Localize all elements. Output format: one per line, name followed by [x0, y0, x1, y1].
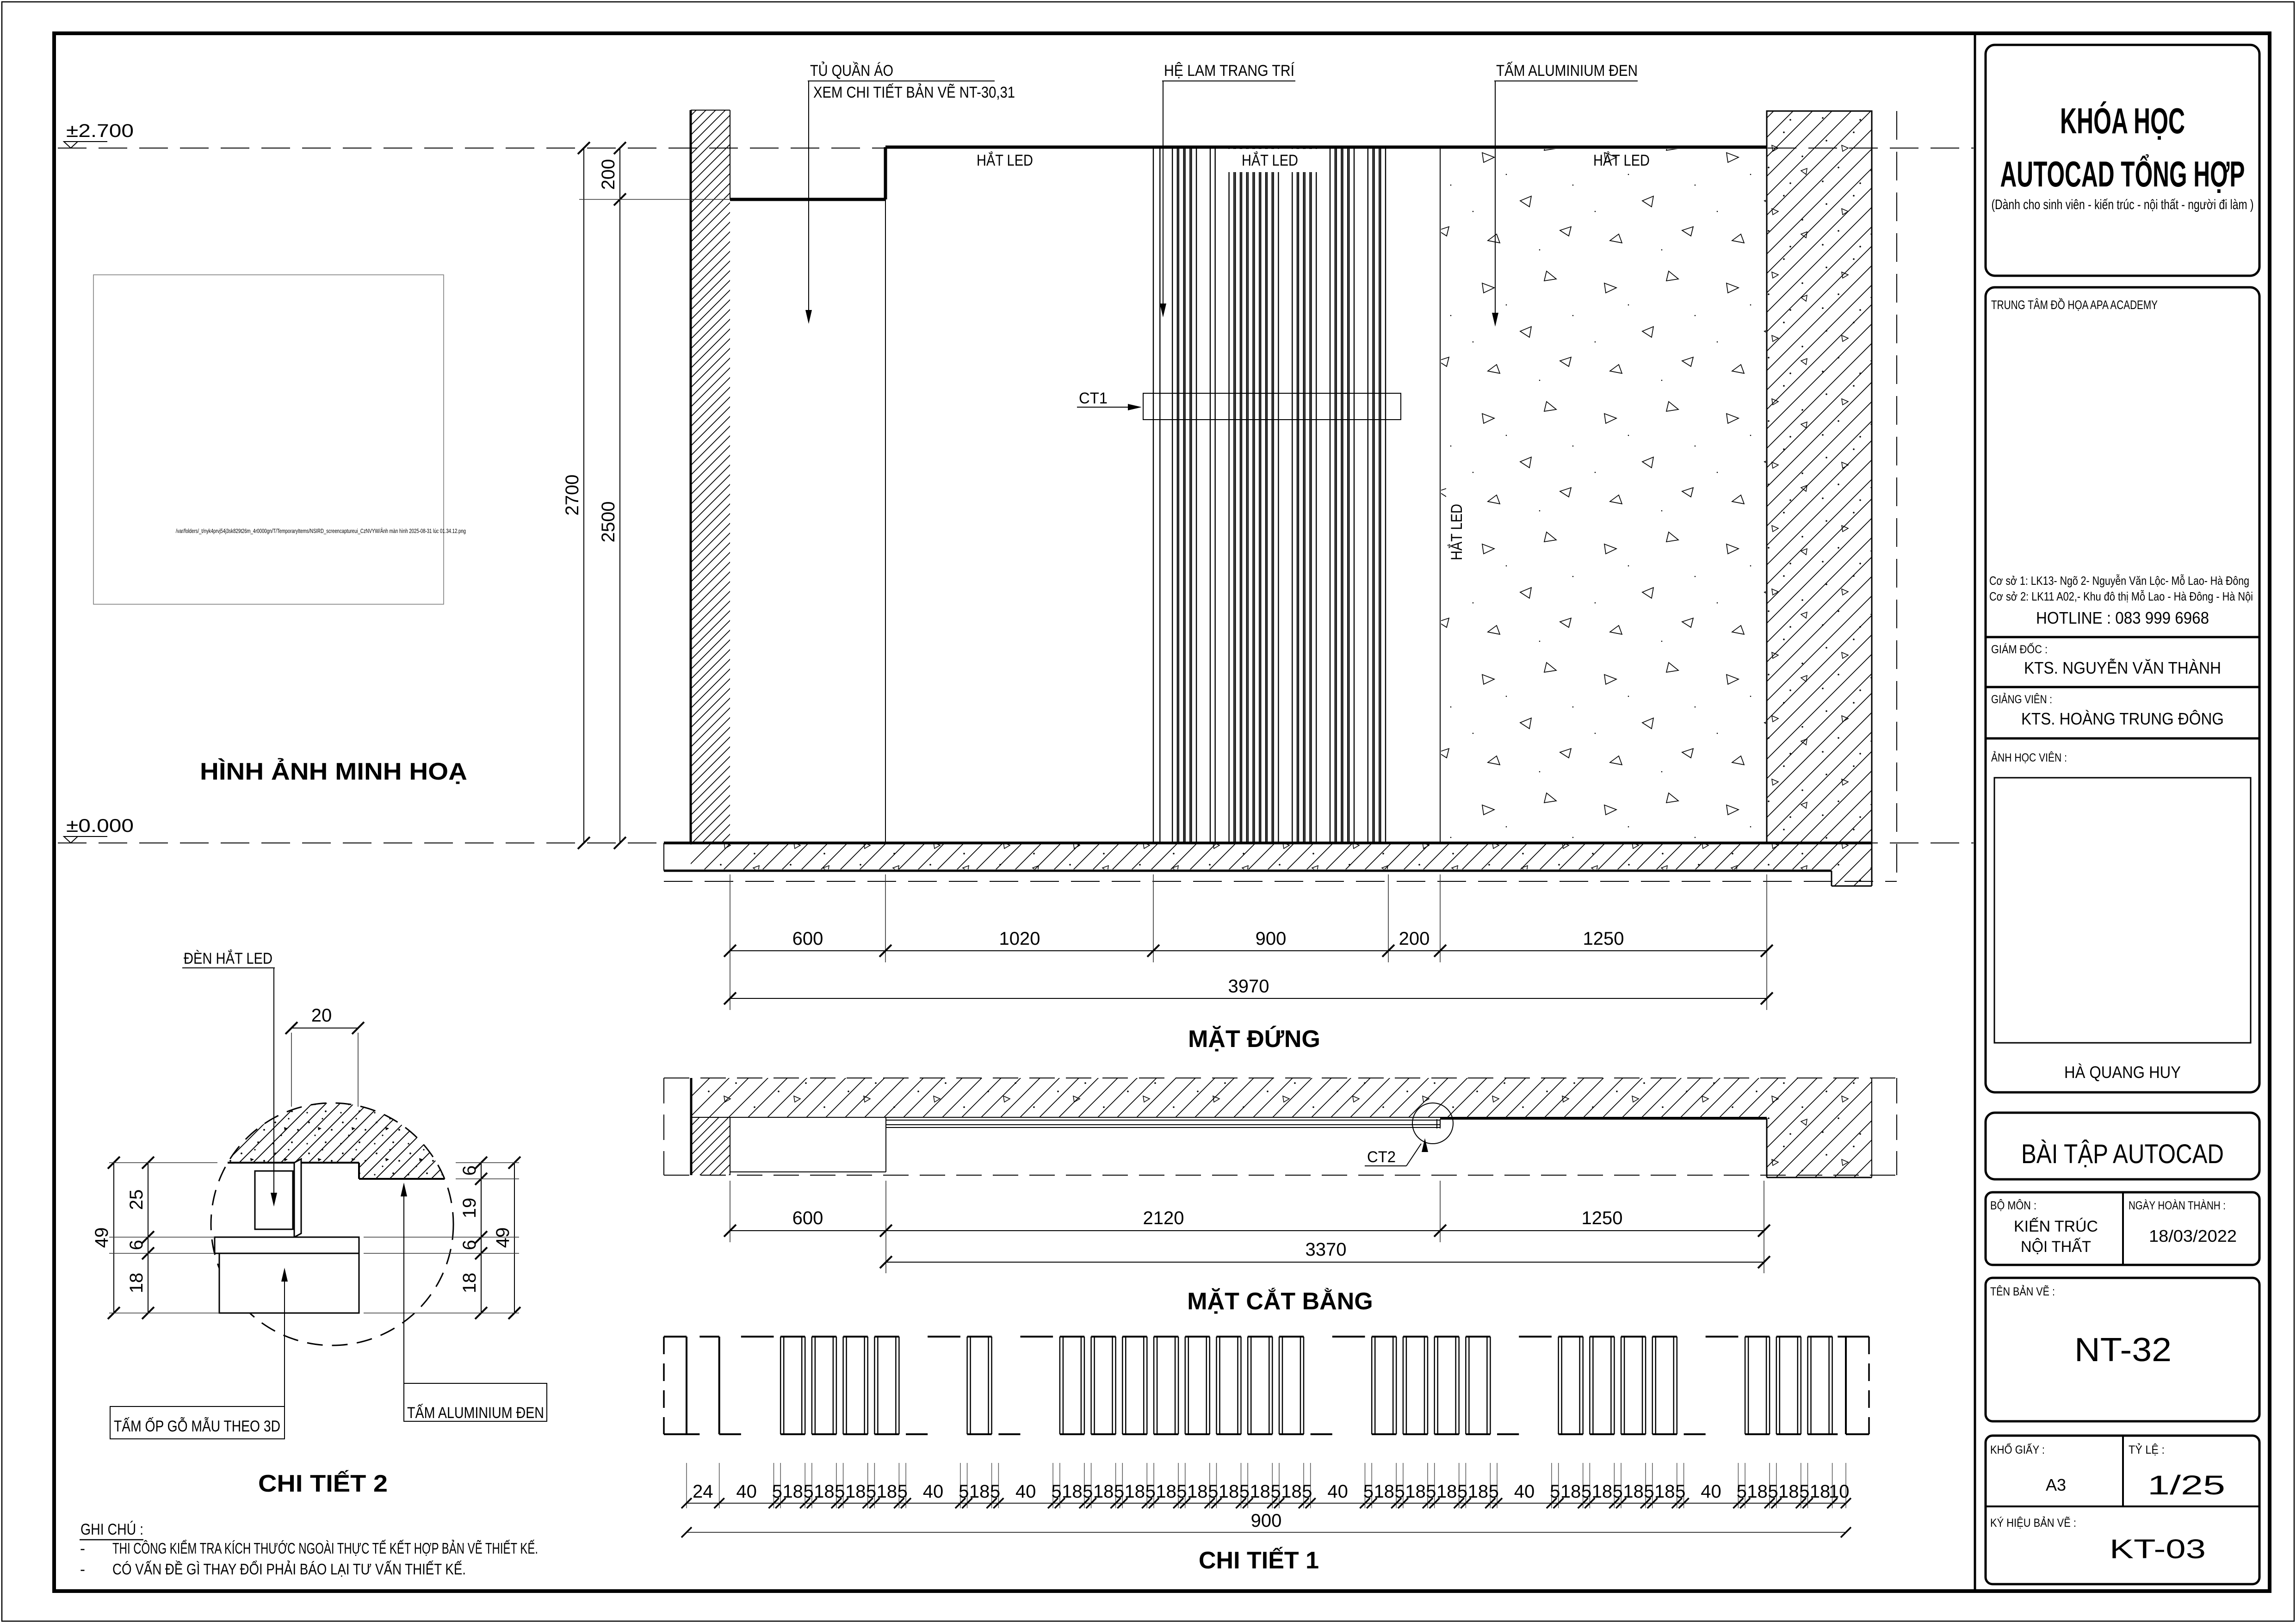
svg-text:18: 18: [1436, 1481, 1457, 1502]
svg-text:KTS. NGUYỄN VĂN THÀNH: KTS. NGUYỄN VĂN THÀNH: [2024, 658, 2221, 677]
svg-text:CÓ VẤN ĐỀ GÌ THAY ĐỔI PHẢI BÁO: CÓ VẤN ĐỀ GÌ THAY ĐỔI PHẢI BÁO LẠI TƯ VẤ…: [112, 1561, 466, 1578]
svg-text:900: 900: [1256, 929, 1287, 949]
svg-text:18: 18: [459, 1273, 480, 1294]
svg-text:5: 5: [1457, 1481, 1467, 1502]
svg-text:KHÓA HỌC: KHÓA HỌC: [2060, 100, 2185, 141]
svg-text:5: 5: [1239, 1481, 1250, 1502]
svg-text:5: 5: [1302, 1481, 1312, 1502]
svg-text:TỦ QUẦN ÁO: TỦ QUẦN ÁO: [810, 62, 893, 80]
svg-text:200: 200: [1399, 929, 1430, 949]
svg-text:HẮT LED: HẮT LED: [977, 152, 1033, 169]
svg-text:TẤM ALUMINIUM ĐEN: TẤM ALUMINIUM ĐEN: [407, 1404, 544, 1422]
svg-text:5: 5: [1208, 1481, 1218, 1502]
svg-text:900: 900: [1251, 1511, 1282, 1531]
svg-text:AUTOCAD TỔNG HỢP: AUTOCAD TỔNG HỢP: [2000, 154, 2245, 194]
svg-text:5: 5: [1550, 1481, 1560, 1502]
svg-text:ĐÈN HẮT LED: ĐÈN HẮT LED: [184, 950, 272, 967]
svg-text:18: 18: [126, 1273, 147, 1294]
svg-text:40: 40: [736, 1481, 757, 1502]
svg-text:5: 5: [1114, 1481, 1124, 1502]
svg-text:18: 18: [1468, 1481, 1489, 1502]
svg-text:2500: 2500: [598, 502, 619, 543]
svg-text:MẶT CẮT BẰNG: MẶT CẮT BẰNG: [1187, 1288, 1373, 1315]
svg-text:5: 5: [866, 1481, 876, 1502]
svg-text:18: 18: [1778, 1481, 1799, 1502]
svg-text:5: 5: [1799, 1481, 1809, 1502]
svg-text:18: 18: [845, 1481, 866, 1502]
svg-text:2700: 2700: [562, 475, 582, 516]
svg-text:18: 18: [1281, 1481, 1302, 1502]
svg-text:5: 5: [1489, 1481, 1499, 1502]
svg-text:TÊN BẢN VẼ :: TÊN BẢN VẼ :: [1990, 1284, 2055, 1298]
svg-text:BỘ MÔN :: BỘ MÔN :: [1990, 1199, 2036, 1212]
svg-text:5: 5: [835, 1481, 845, 1502]
svg-text:5: 5: [1145, 1481, 1156, 1502]
svg-text:5: 5: [1363, 1481, 1374, 1502]
svg-text:6: 6: [459, 1165, 480, 1176]
svg-text:CHI TIẾT 1: CHI TIẾT 1: [1199, 1547, 1319, 1574]
svg-text:19: 19: [459, 1198, 480, 1219]
svg-text:-: -: [80, 1561, 85, 1578]
svg-text:40: 40: [1514, 1481, 1535, 1502]
svg-text:5: 5: [1675, 1481, 1685, 1502]
svg-text:HẮT LED: HẮT LED: [1242, 152, 1298, 169]
svg-text:2120: 2120: [1143, 1208, 1184, 1228]
svg-text:5: 5: [1613, 1481, 1623, 1502]
svg-text:5: 5: [1051, 1481, 1061, 1502]
svg-text:18: 18: [782, 1481, 803, 1502]
svg-text:200: 200: [598, 159, 619, 190]
svg-text:18: 18: [1623, 1481, 1644, 1502]
svg-text:10: 10: [1829, 1481, 1850, 1502]
svg-text:TẤM ỐP GỖ MẪU THEO 3D: TẤM ỐP GỖ MẪU THEO 3D: [114, 1417, 280, 1435]
svg-text:18: 18: [1560, 1481, 1581, 1502]
svg-text:THI CÔNG KIỂM TRA KÍCH THƯỚC N: THI CÔNG KIỂM TRA KÍCH THƯỚC NGOÀI THỰC …: [112, 1540, 538, 1557]
svg-text:18: 18: [1093, 1481, 1114, 1502]
svg-text:40: 40: [1327, 1481, 1348, 1502]
svg-text:5: 5: [1581, 1481, 1591, 1502]
svg-text:NGÀY HOÀN THÀNH :: NGÀY HOÀN THÀNH :: [2129, 1199, 2226, 1212]
svg-text:18: 18: [1250, 1481, 1270, 1502]
svg-text:18: 18: [1654, 1481, 1675, 1502]
svg-text:GIẢNG VIÊN :: GIẢNG VIÊN :: [1991, 692, 2052, 706]
svg-text:5: 5: [959, 1481, 969, 1502]
svg-text:KTS. HOÀNG TRUNG ĐÔNG: KTS. HOÀNG TRUNG ĐÔNG: [2021, 709, 2224, 728]
svg-text:18: 18: [1187, 1481, 1208, 1502]
svg-text:HẮT LED: HẮT LED: [1593, 152, 1650, 169]
svg-text:XEM CHI TIẾT BẢN VẼ NT-30,31: XEM CHI TIẾT BẢN VẼ NT-30,31: [813, 84, 1015, 101]
svg-text:KIẾN TRÚC: KIẾN TRÚC: [2014, 1218, 2098, 1235]
svg-text:40: 40: [1701, 1481, 1721, 1502]
svg-text:18: 18: [1405, 1481, 1426, 1502]
svg-text:5: 5: [1768, 1481, 1778, 1502]
svg-text:CT1: CT1: [1079, 390, 1108, 407]
svg-text:±0.000: ±0.000: [66, 816, 134, 836]
svg-text:HỆ LAM TRANG TRÍ: HỆ LAM TRANG TRÍ: [1164, 62, 1294, 80]
svg-text:BÀI TẬP AUTOCAD: BÀI TẬP AUTOCAD: [2021, 1139, 2224, 1169]
svg-text:25: 25: [126, 1189, 147, 1210]
svg-text:5: 5: [1426, 1481, 1436, 1502]
svg-text:/var/folders/_t/nyk4prvj54j3sk: /var/folders/_t/nyk4prvj54j3sk829t26m_4r…: [176, 527, 466, 534]
svg-text:49: 49: [92, 1227, 112, 1248]
svg-text:40: 40: [1015, 1481, 1036, 1502]
svg-text:18: 18: [1592, 1481, 1613, 1502]
svg-text:(Dành cho sinh viên - kiến tr: (Dành cho sinh viên - kiến trúc - nội th…: [1992, 197, 2254, 212]
svg-text:5: 5: [1737, 1481, 1747, 1502]
svg-text:1250: 1250: [1582, 1208, 1623, 1228]
svg-text:5: 5: [1083, 1481, 1093, 1502]
svg-text:3370: 3370: [1306, 1239, 1347, 1260]
svg-text:5: 5: [1176, 1481, 1187, 1502]
svg-text:NỘI THẤT: NỘI THẤT: [2021, 1238, 2091, 1256]
svg-text:MẶT ĐỨNG: MẶT ĐỨNG: [1188, 1026, 1320, 1053]
svg-text:GIÁM ĐỐC :: GIÁM ĐỐC :: [1991, 642, 2048, 656]
svg-text:40: 40: [923, 1481, 944, 1502]
svg-text:18: 18: [877, 1481, 897, 1502]
svg-text:600: 600: [792, 1208, 823, 1228]
svg-text:Cơ sở 1: LK13- Ngõ 2- Nguyễn V: Cơ sở 1: LK13- Ngõ 2- Nguyễn Văn Lộc- Mỗ…: [1989, 574, 2249, 588]
svg-text:5: 5: [772, 1481, 782, 1502]
svg-text:49: 49: [493, 1227, 513, 1248]
svg-text:TẤM ALUMINIUM ĐEN: TẤM ALUMINIUM ĐEN: [1496, 62, 1638, 80]
svg-text:CHI TIẾT 2: CHI TIẾT 2: [258, 1470, 388, 1497]
svg-text:KT-03: KT-03: [2110, 1534, 2206, 1564]
svg-text:18/03/2022: 18/03/2022: [2149, 1227, 2237, 1245]
svg-text:6: 6: [459, 1240, 480, 1250]
svg-text:KHỔ GIẤY :: KHỔ GIẤY :: [1990, 1443, 2045, 1456]
svg-text:18: 18: [1810, 1481, 1831, 1502]
svg-text:20: 20: [311, 1005, 332, 1026]
svg-text:HÀ QUANG HUY: HÀ QUANG HUY: [2064, 1063, 2181, 1082]
svg-text:A3: A3: [2046, 1475, 2066, 1494]
svg-text:6: 6: [126, 1240, 147, 1250]
svg-text:3970: 3970: [1228, 976, 1269, 997]
svg-text:-: -: [80, 1540, 85, 1557]
svg-text:TỶ LỆ :: TỶ LỆ :: [2129, 1443, 2165, 1456]
svg-text:Cơ sở 2: LK11 A02,- Khu đô thị: Cơ sở 2: LK11 A02,- Khu đô thị Mỗ Lao - …: [1989, 589, 2253, 603]
svg-text:HÌNH ẢNH MINH HOẠ: HÌNH ẢNH MINH HOẠ: [200, 758, 467, 785]
svg-text:NT-32: NT-32: [2074, 1332, 2172, 1369]
svg-text:18: 18: [969, 1481, 990, 1502]
svg-text:18: 18: [1125, 1481, 1145, 1502]
svg-text:5: 5: [897, 1481, 908, 1502]
svg-text:KÝ HIỆU BẢN VẼ :: KÝ HIỆU BẢN VẼ :: [1990, 1516, 2076, 1530]
svg-text:18: 18: [1374, 1481, 1394, 1502]
svg-text:18: 18: [1062, 1481, 1083, 1502]
svg-text:5: 5: [1394, 1481, 1405, 1502]
svg-text:18: 18: [814, 1481, 835, 1502]
svg-text:18: 18: [1747, 1481, 1768, 1502]
svg-text:GHI CHÚ :: GHI CHÚ :: [80, 1521, 143, 1538]
svg-text:HẮT LED: HẮT LED: [1448, 504, 1466, 560]
svg-text:ẢNH HỌC VIÊN :: ẢNH HỌC VIÊN :: [1991, 750, 2067, 764]
svg-text:1020: 1020: [999, 929, 1040, 949]
svg-text:24: 24: [693, 1481, 713, 1502]
svg-text:600: 600: [792, 929, 823, 949]
svg-text:1/25: 1/25: [2147, 1470, 2225, 1500]
svg-text:CT2: CT2: [1367, 1148, 1396, 1166]
svg-text:5: 5: [803, 1481, 813, 1502]
svg-text:HOTLINE : 083 999 6968: HOTLINE : 083 999 6968: [2036, 608, 2209, 627]
svg-text:5: 5: [1270, 1481, 1281, 1502]
svg-text:TRUNG TÂM ĐỒ HỌA APA ACADEMY: TRUNG TÂM ĐỒ HỌA APA ACADEMY: [1991, 297, 2158, 312]
svg-text:±2.700: ±2.700: [66, 121, 134, 141]
svg-text:1250: 1250: [1583, 929, 1624, 949]
svg-text:18: 18: [1219, 1481, 1239, 1502]
svg-text:5: 5: [990, 1481, 1000, 1502]
svg-text:5: 5: [1644, 1481, 1654, 1502]
svg-text:18: 18: [1156, 1481, 1176, 1502]
